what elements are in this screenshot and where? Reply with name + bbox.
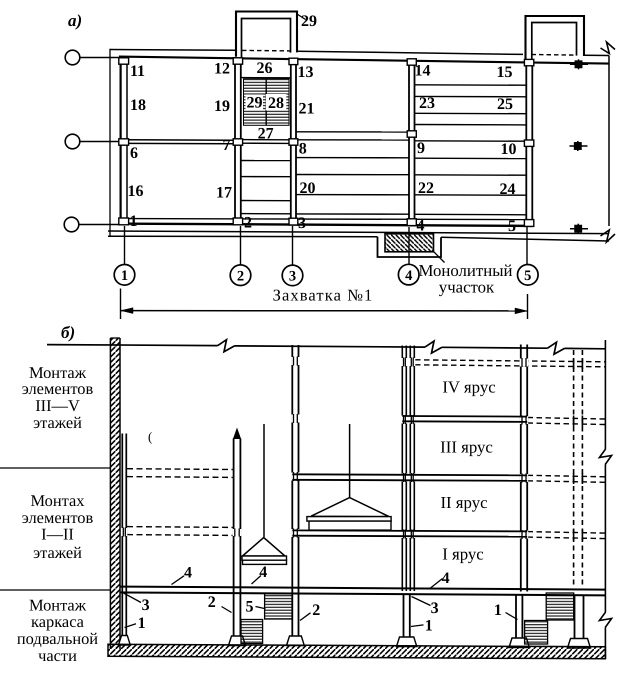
svg-text:15: 15 (497, 64, 513, 81)
svg-text:этажей: этажей (33, 413, 82, 432)
svg-text:5: 5 (508, 218, 516, 235)
svg-text:23: 23 (419, 95, 435, 112)
svg-text:21: 21 (299, 101, 315, 118)
svg-text:2: 2 (244, 214, 252, 231)
svg-text:а): а) (68, 11, 82, 30)
svg-text:этажей: этажей (33, 543, 82, 562)
svg-text:7: 7 (223, 137, 231, 154)
svg-text:16: 16 (128, 183, 144, 200)
svg-text:19: 19 (214, 98, 230, 115)
svg-text:2: 2 (312, 602, 320, 619)
svg-text:17: 17 (216, 185, 232, 202)
svg-text:24: 24 (500, 181, 516, 198)
svg-text:27: 27 (258, 126, 274, 143)
svg-text:11: 11 (130, 63, 145, 80)
svg-text:1: 1 (494, 602, 502, 619)
svg-text:18: 18 (130, 97, 146, 114)
svg-text:1: 1 (121, 268, 128, 284)
svg-text:1: 1 (425, 617, 433, 634)
svg-text:8: 8 (299, 141, 307, 158)
svg-text:3: 3 (431, 600, 439, 617)
svg-text:26: 26 (257, 60, 273, 77)
svg-text:5: 5 (246, 598, 254, 615)
svg-text:I—II: I—II (41, 525, 74, 544)
svg-text:6: 6 (130, 145, 138, 162)
svg-text:III ярус: III ярус (440, 438, 493, 457)
svg-text:1: 1 (130, 213, 138, 230)
svg-text:части: части (38, 646, 77, 665)
svg-text:29: 29 (247, 95, 263, 112)
svg-text:4: 4 (417, 217, 425, 234)
svg-text:13: 13 (298, 64, 314, 81)
svg-text:1: 1 (138, 615, 146, 632)
svg-text:5: 5 (524, 268, 531, 284)
svg-text:IV ярус: IV ярус (442, 378, 495, 397)
svg-text:12: 12 (214, 60, 230, 77)
svg-text:3: 3 (142, 597, 150, 614)
svg-text:Захватка №1: Захватка №1 (273, 286, 374, 305)
svg-text:б): б) (61, 323, 75, 342)
svg-text:4: 4 (442, 570, 450, 587)
svg-text:4: 4 (259, 564, 267, 581)
svg-text:22: 22 (418, 180, 434, 197)
svg-text:4: 4 (405, 268, 412, 284)
svg-text:29: 29 (301, 13, 317, 30)
svg-text:участок: участок (439, 278, 495, 297)
svg-text:3: 3 (298, 215, 306, 232)
svg-text:28: 28 (268, 95, 284, 112)
svg-text:2: 2 (237, 268, 244, 284)
svg-text:20: 20 (300, 180, 316, 197)
svg-text:II ярус: II ярус (440, 493, 487, 512)
svg-text:2: 2 (208, 594, 216, 611)
svg-text:9: 9 (417, 140, 425, 157)
svg-text:14: 14 (415, 63, 431, 80)
svg-text:3: 3 (289, 269, 296, 285)
svg-text:4: 4 (184, 564, 192, 581)
svg-text:(: ( (148, 429, 152, 444)
svg-text:I ярус: I ярус (442, 544, 484, 563)
svg-text:10: 10 (501, 141, 517, 158)
svg-text:25: 25 (497, 96, 513, 113)
